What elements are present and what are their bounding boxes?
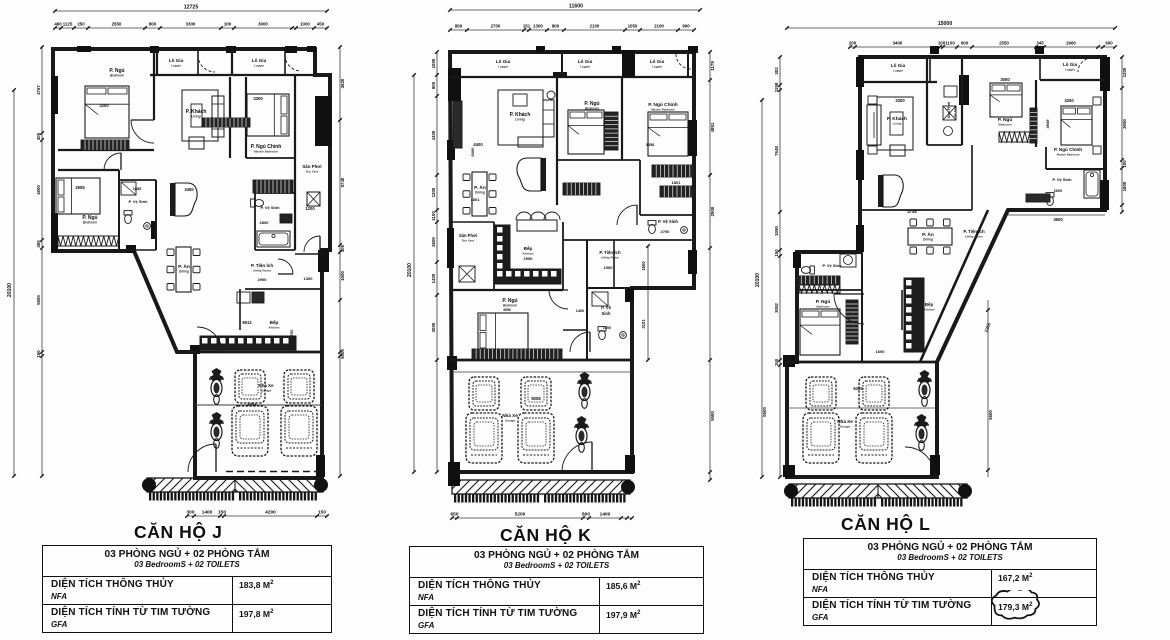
svg-text:600: 600 bbox=[1105, 41, 1113, 46]
svg-text:Lô Gia: Lô Gia bbox=[252, 58, 267, 63]
svg-text:5500: 5500 bbox=[710, 411, 715, 421]
svg-text:300: 300 bbox=[340, 244, 345, 252]
svg-text:2900: 2900 bbox=[710, 206, 715, 216]
svg-text:5200: 5200 bbox=[515, 512, 526, 518]
svg-text:1200: 1200 bbox=[431, 187, 436, 197]
svg-text:2100: 2100 bbox=[654, 24, 664, 29]
svg-text:3450: 3450 bbox=[184, 187, 194, 192]
svg-text:P. Ngủ Chính: P. Ngủ Chính bbox=[1054, 147, 1082, 152]
svg-text:1500: 1500 bbox=[604, 265, 614, 270]
svg-text:1600: 1600 bbox=[876, 349, 886, 354]
svg-text:Garage: Garage bbox=[261, 389, 272, 393]
svg-text:Loggia: Loggia bbox=[171, 64, 181, 68]
svg-text:Dry Yard: Dry Yard bbox=[306, 170, 319, 174]
svg-text:3400: 3400 bbox=[893, 41, 903, 46]
svg-text:Bếp: Bếp bbox=[925, 302, 934, 307]
svg-text:1800: 1800 bbox=[1122, 181, 1127, 191]
svg-text:6365: 6365 bbox=[853, 386, 863, 391]
svg-text:20100: 20100 bbox=[755, 273, 761, 287]
svg-text:Utility Room: Utility Room bbox=[253, 269, 271, 273]
svg-text:Dining: Dining bbox=[179, 270, 189, 274]
svg-text:1125: 1125 bbox=[63, 22, 73, 27]
svg-text:1400: 1400 bbox=[576, 309, 584, 313]
svg-text:2960: 2960 bbox=[1066, 41, 1076, 46]
svg-text:3000: 3000 bbox=[431, 322, 436, 332]
svg-text:Bedroom: Bedroom bbox=[998, 123, 1012, 127]
svg-text:Loggia: Loggia bbox=[254, 64, 264, 68]
svg-text:650: 650 bbox=[450, 512, 458, 518]
svg-text:300: 300 bbox=[186, 510, 194, 516]
svg-text:2550: 2550 bbox=[999, 41, 1009, 46]
svg-text:1600: 1600 bbox=[641, 261, 646, 271]
svg-text:Lô Gia: Lô Gia bbox=[650, 59, 665, 64]
svg-text:Living: Living bbox=[893, 122, 902, 126]
svg-text:800: 800 bbox=[455, 24, 463, 29]
svg-text:Utility Room: Utility Room bbox=[601, 256, 619, 260]
svg-text:345: 345 bbox=[1036, 41, 1044, 46]
svg-text:2600: 2600 bbox=[1054, 189, 1062, 193]
svg-text:Lô Gia: Lô Gia bbox=[578, 59, 593, 64]
svg-text:Dry Yard: Dry Yard bbox=[462, 239, 475, 243]
svg-text:900: 900 bbox=[682, 24, 690, 29]
svg-text:150: 150 bbox=[218, 510, 226, 516]
svg-text:11600: 11600 bbox=[569, 4, 583, 10]
svg-text:450: 450 bbox=[317, 22, 325, 27]
svg-text:15000: 15000 bbox=[938, 21, 953, 27]
svg-text:3620: 3620 bbox=[340, 78, 345, 88]
svg-text:Sân Phơi: Sân Phơi bbox=[947, 102, 951, 119]
svg-text:2550: 2550 bbox=[112, 22, 122, 27]
svg-text:Sân Phơi: Sân Phơi bbox=[459, 233, 477, 238]
svg-text:2800: 2800 bbox=[260, 220, 270, 225]
svg-text:150: 150 bbox=[36, 350, 41, 358]
svg-text:3250: 3250 bbox=[1064, 98, 1074, 103]
svg-text:1400: 1400 bbox=[600, 512, 611, 518]
svg-text:460: 460 bbox=[54, 22, 62, 27]
svg-text:1100: 1100 bbox=[431, 211, 436, 221]
svg-text:2955: 2955 bbox=[75, 185, 85, 190]
svg-text:1200: 1200 bbox=[1122, 67, 1127, 77]
svg-text:Bedroom: Bedroom bbox=[110, 74, 124, 78]
svg-text:150: 150 bbox=[774, 358, 779, 366]
svg-text:2900: 2900 bbox=[258, 277, 268, 282]
svg-text:Lô Gia: Lô Gia bbox=[891, 63, 906, 68]
svg-text:8058: 8058 bbox=[531, 396, 541, 401]
svg-text:Master Bedroom: Master Bedroom bbox=[651, 108, 675, 112]
svg-text:Lô Gia: Lô Gia bbox=[169, 58, 184, 63]
svg-text:2950: 2950 bbox=[524, 256, 534, 261]
svg-text:P. Vệ Sinh: P. Vệ Sinh bbox=[128, 199, 148, 204]
svg-text:Nhà Xe: Nhà Xe bbox=[502, 413, 518, 418]
svg-text:Utility Room: Utility Room bbox=[965, 235, 983, 239]
svg-text:4400: 4400 bbox=[473, 142, 483, 147]
svg-text:Garage: Garage bbox=[505, 419, 516, 423]
svg-text:200: 200 bbox=[849, 41, 857, 46]
svg-text:6912: 6912 bbox=[242, 320, 252, 325]
svg-text:Living: Living bbox=[191, 115, 200, 119]
svg-text:5500: 5500 bbox=[762, 407, 767, 417]
svg-text:100: 100 bbox=[1122, 160, 1127, 168]
svg-text:2100: 2100 bbox=[590, 24, 600, 29]
svg-text:3200: 3200 bbox=[99, 103, 109, 108]
svg-text:20100: 20100 bbox=[407, 263, 413, 277]
svg-text:20100: 20100 bbox=[7, 283, 13, 297]
svg-text:3300: 3300 bbox=[186, 22, 196, 27]
svg-text:1100: 1100 bbox=[945, 41, 955, 46]
svg-text:Dining: Dining bbox=[923, 238, 933, 242]
svg-text:150: 150 bbox=[774, 249, 779, 257]
svg-text:P. Vệ Sinh: P. Vệ Sinh bbox=[658, 219, 678, 224]
svg-text:3000: 3000 bbox=[258, 22, 268, 27]
svg-text:1400: 1400 bbox=[431, 273, 436, 283]
svg-text:Dining: Dining bbox=[475, 191, 485, 195]
svg-text:Kitchen: Kitchen bbox=[522, 252, 533, 256]
svg-text:Bedroom: Bedroom bbox=[83, 221, 97, 225]
svg-text:Loggia: Loggia bbox=[1065, 68, 1075, 72]
svg-text:250: 250 bbox=[77, 22, 85, 27]
svg-text:2700: 2700 bbox=[661, 229, 671, 234]
svg-text:P. Vệ Sinh: P. Vệ Sinh bbox=[260, 205, 280, 210]
svg-text:5500: 5500 bbox=[36, 295, 41, 305]
svg-text:12725: 12725 bbox=[184, 5, 199, 11]
svg-text:Loggia: Loggia bbox=[893, 69, 903, 73]
svg-text:1801: 1801 bbox=[471, 197, 481, 202]
svg-text:P. Vệ Sinh: P. Vệ Sinh bbox=[822, 263, 842, 268]
svg-text:4600: 4600 bbox=[36, 185, 41, 195]
svg-text:Kitchen: Kitchen bbox=[268, 326, 279, 330]
svg-text:1000: 1000 bbox=[431, 58, 436, 68]
svg-text:P. Tiện Ích: P. Tiện Ích bbox=[963, 229, 985, 234]
svg-text:Lô Gia: Lô Gia bbox=[1063, 62, 1078, 67]
svg-text:4950: 4950 bbox=[503, 308, 511, 312]
svg-text:100: 100 bbox=[224, 22, 232, 27]
svg-text:4767: 4767 bbox=[36, 85, 41, 95]
svg-text:300: 300 bbox=[36, 132, 41, 140]
svg-text:4400: 4400 bbox=[431, 130, 436, 140]
svg-text:1050: 1050 bbox=[774, 226, 779, 236]
svg-text:800: 800 bbox=[552, 24, 560, 29]
svg-text:1801: 1801 bbox=[672, 180, 682, 185]
svg-text:600: 600 bbox=[961, 41, 969, 46]
svg-text:1300: 1300 bbox=[533, 24, 543, 29]
svg-text:Loggia: Loggia bbox=[498, 65, 508, 69]
svg-text:600: 600 bbox=[431, 81, 436, 89]
svg-text:Lô Gia: Lô Gia bbox=[496, 59, 511, 64]
svg-text:2255: 2255 bbox=[983, 321, 992, 332]
svg-text:3300: 3300 bbox=[253, 96, 263, 101]
svg-text:5500: 5500 bbox=[340, 349, 345, 359]
svg-text:3650: 3650 bbox=[1122, 119, 1127, 129]
svg-text:1200: 1200 bbox=[305, 206, 315, 211]
svg-text:Bedroom: Bedroom bbox=[503, 304, 517, 308]
svg-text:Master Bedroom: Master Bedroom bbox=[254, 150, 278, 154]
svg-text:P. Vệ Sinh: P. Vệ Sinh bbox=[1052, 177, 1072, 182]
svg-text:1198: 1198 bbox=[774, 82, 779, 92]
svg-text:800: 800 bbox=[149, 22, 157, 27]
svg-text:7648: 7648 bbox=[774, 146, 779, 156]
svg-text:Bếp: Bếp bbox=[524, 245, 533, 251]
svg-text:4851: 4851 bbox=[710, 122, 715, 132]
svg-text:Bếp: Bếp bbox=[270, 319, 279, 325]
svg-text:Bedroom: Bedroom bbox=[816, 305, 830, 309]
svg-text:3101: 3101 bbox=[641, 319, 646, 329]
svg-text:3358: 3358 bbox=[646, 143, 654, 147]
svg-text:P. Tiện Ích: P. Tiện Ích bbox=[251, 261, 273, 268]
svg-text:4200: 4200 bbox=[265, 510, 276, 516]
svg-text:Sinh: Sinh bbox=[601, 311, 611, 316]
svg-text:Kitchen: Kitchen bbox=[923, 308, 934, 312]
svg-text:4748: 4748 bbox=[907, 209, 917, 214]
svg-text:6000: 6000 bbox=[470, 147, 475, 157]
svg-text:2600: 2600 bbox=[431, 237, 436, 247]
svg-text:2700: 2700 bbox=[491, 24, 501, 29]
svg-text:1300: 1300 bbox=[304, 276, 314, 281]
svg-text:Master Bedroom: Master Bedroom bbox=[1057, 153, 1080, 157]
svg-text:4949: 4949 bbox=[1045, 119, 1050, 129]
svg-text:1000: 1000 bbox=[300, 22, 310, 27]
svg-text:1885: 1885 bbox=[133, 187, 141, 191]
svg-text:Garage: Garage bbox=[840, 425, 851, 429]
svg-text:5740: 5740 bbox=[340, 177, 345, 187]
svg-text:5500: 5500 bbox=[988, 410, 993, 420]
svg-text:1179: 1179 bbox=[710, 61, 715, 71]
svg-text:800: 800 bbox=[582, 512, 590, 518]
svg-text:1600: 1600 bbox=[340, 271, 345, 281]
svg-text:1050: 1050 bbox=[628, 24, 638, 29]
svg-text:Loggia: Loggia bbox=[652, 65, 662, 69]
svg-text:Sân Phơi: Sân Phơi bbox=[302, 164, 321, 169]
svg-text:300: 300 bbox=[36, 240, 41, 248]
svg-text:3050: 3050 bbox=[1000, 77, 1010, 82]
svg-text:1400: 1400 bbox=[202, 510, 213, 516]
svg-text:302: 302 bbox=[774, 67, 779, 75]
svg-text:150: 150 bbox=[318, 510, 326, 516]
svg-text:151: 151 bbox=[523, 24, 531, 29]
svg-text:3600: 3600 bbox=[1053, 217, 1063, 222]
svg-text:Living: Living bbox=[515, 118, 524, 122]
svg-text:3300: 3300 bbox=[895, 98, 905, 103]
svg-text:3052: 3052 bbox=[774, 303, 779, 313]
svg-text:P. Tiện Ích: P. Tiện Ích bbox=[599, 250, 621, 255]
svg-text:Loggia: Loggia bbox=[580, 65, 590, 69]
